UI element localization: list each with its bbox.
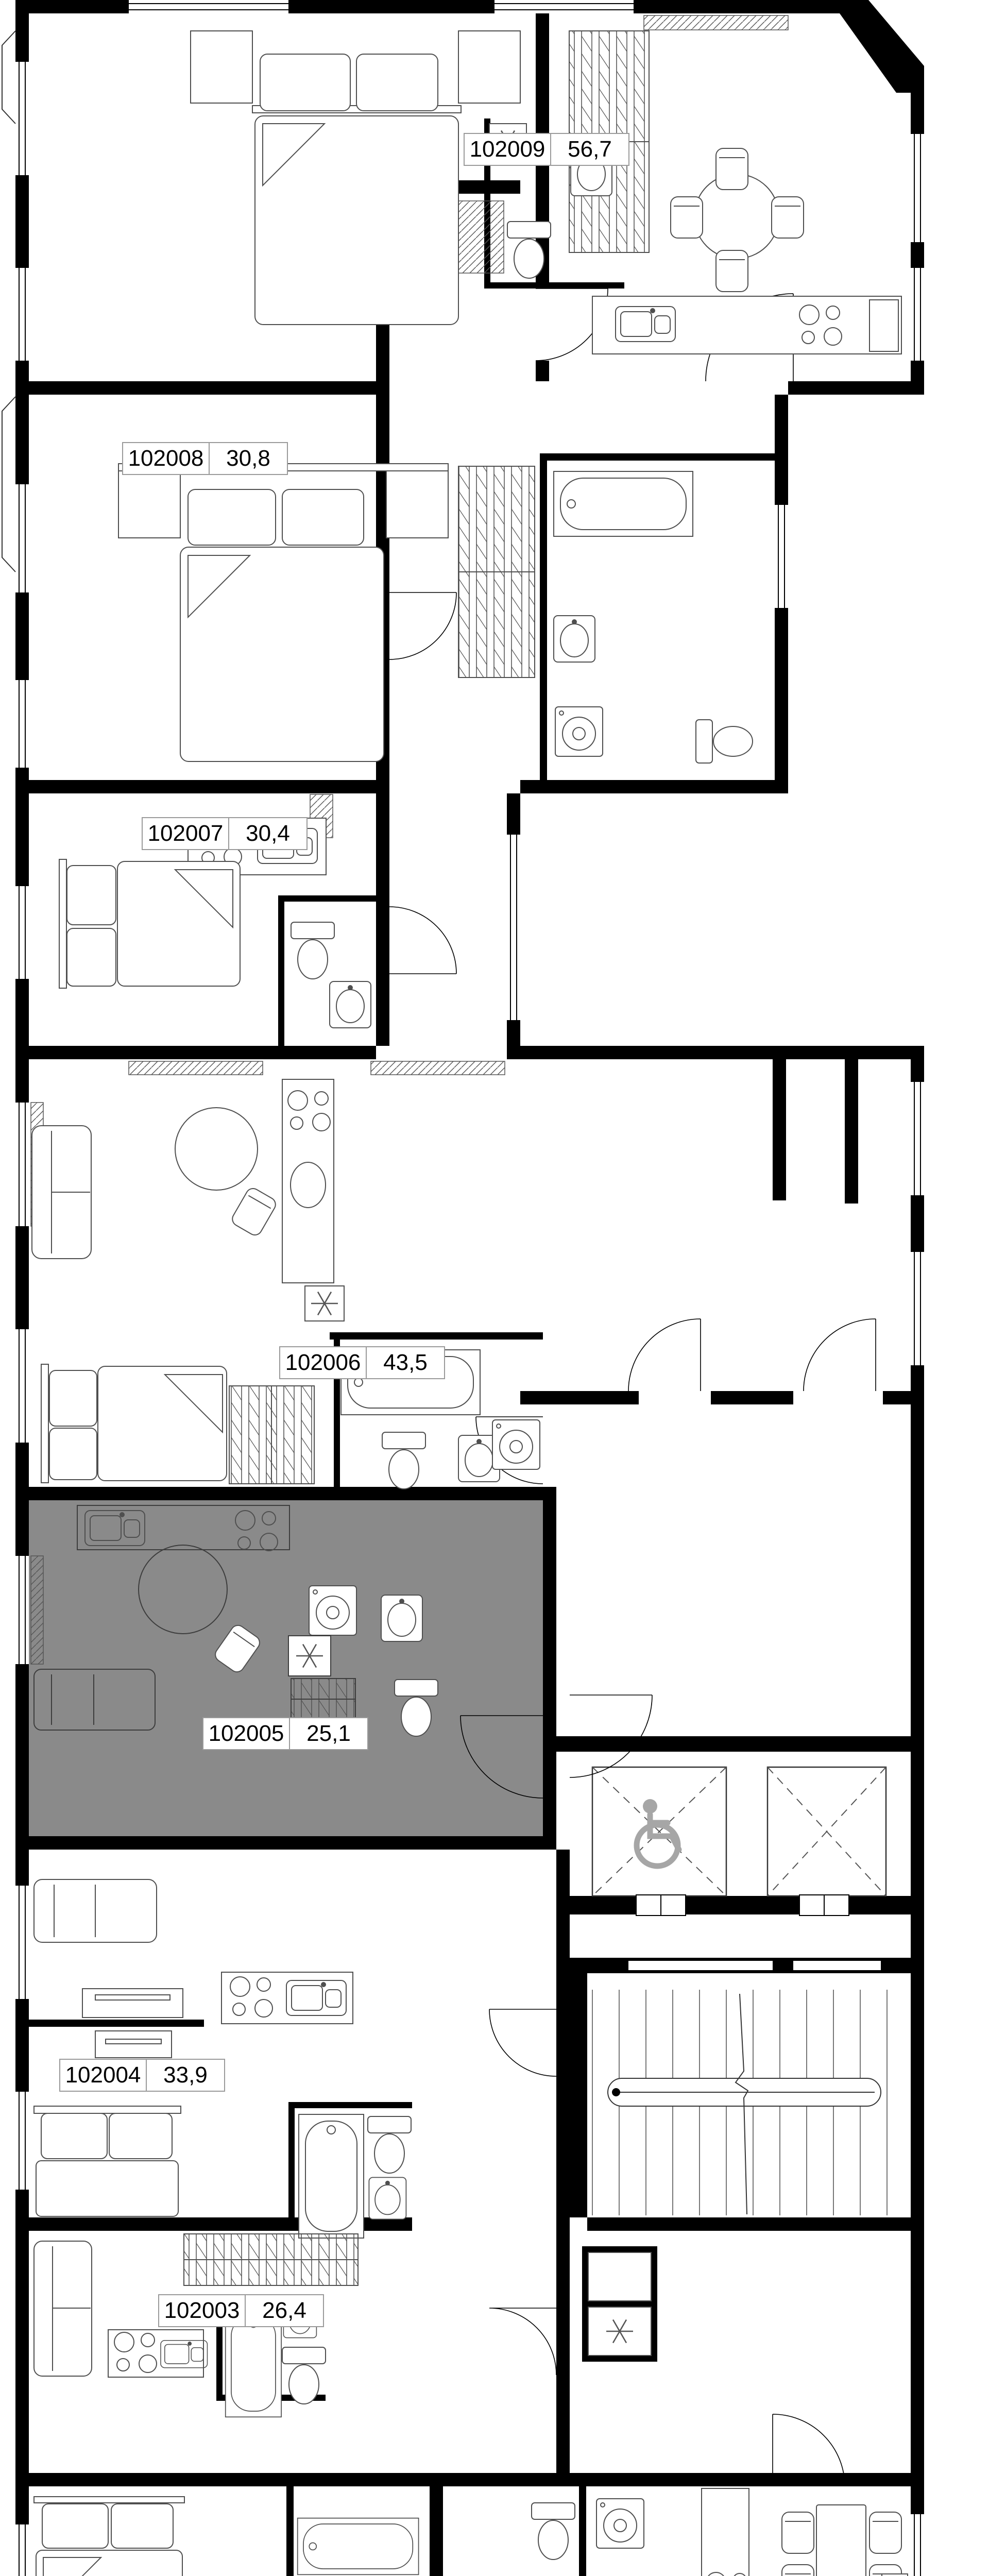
balcony-outline xyxy=(2,31,15,2576)
apartment-number: 102004 xyxy=(60,2060,147,2091)
staircase xyxy=(592,1990,887,2215)
elevator-core xyxy=(592,1767,886,1970)
table xyxy=(175,1108,258,1190)
unit-102008-furniture xyxy=(118,464,753,763)
apartment-label-102009[interactable]: 102009 56,7 xyxy=(464,133,629,166)
core-niches xyxy=(628,1961,881,1970)
dining-table xyxy=(816,2505,866,2576)
apartment-label-102003[interactable]: 102003 26,4 xyxy=(158,2294,324,2327)
unit-102006-furniture xyxy=(32,1079,540,1489)
apartment-label-102007[interactable]: 102007 30,4 xyxy=(142,817,308,850)
unit-102002-furniture xyxy=(34,2497,428,2576)
apartment-number: 102008 xyxy=(123,443,210,474)
apartment-area: 26,4 xyxy=(246,2295,323,2326)
apartment-area: 30,8 xyxy=(210,443,287,474)
floorplan-canvas: 102009 56,7 102008 30,8 102007 30,4 1020… xyxy=(0,0,989,2576)
apartment-area: 56,7 xyxy=(551,134,628,165)
apartment-number: 102005 xyxy=(203,1718,290,1749)
apartment-label-102005[interactable]: 102005 25,1 xyxy=(202,1717,368,1750)
apartment-area: 43,5 xyxy=(367,1347,444,1378)
furniture xyxy=(32,31,932,2576)
bathtub xyxy=(299,2114,364,2238)
apartment-label-102004[interactable]: 102004 33,9 xyxy=(59,2059,225,2092)
apartment-area: 25,1 xyxy=(290,1718,367,1749)
floorplan-drawing xyxy=(0,0,989,2576)
unit-102001-furniture xyxy=(463,2488,932,2576)
apartment-label-102006[interactable]: 102006 43,5 xyxy=(279,1346,445,1379)
apartment-label-102008[interactable]: 102008 30,8 xyxy=(122,442,288,475)
apartment-area: 30,4 xyxy=(229,818,306,849)
apartment-area: 33,9 xyxy=(147,2060,224,2091)
bathtub xyxy=(554,471,693,536)
apartment-number: 102006 xyxy=(280,1347,367,1378)
apartment-number: 102007 xyxy=(143,818,229,849)
apartment-number: 102003 xyxy=(159,2295,246,2326)
unit-102005-highlight[interactable] xyxy=(29,1500,543,1836)
apartment-number: 102009 xyxy=(465,134,551,165)
